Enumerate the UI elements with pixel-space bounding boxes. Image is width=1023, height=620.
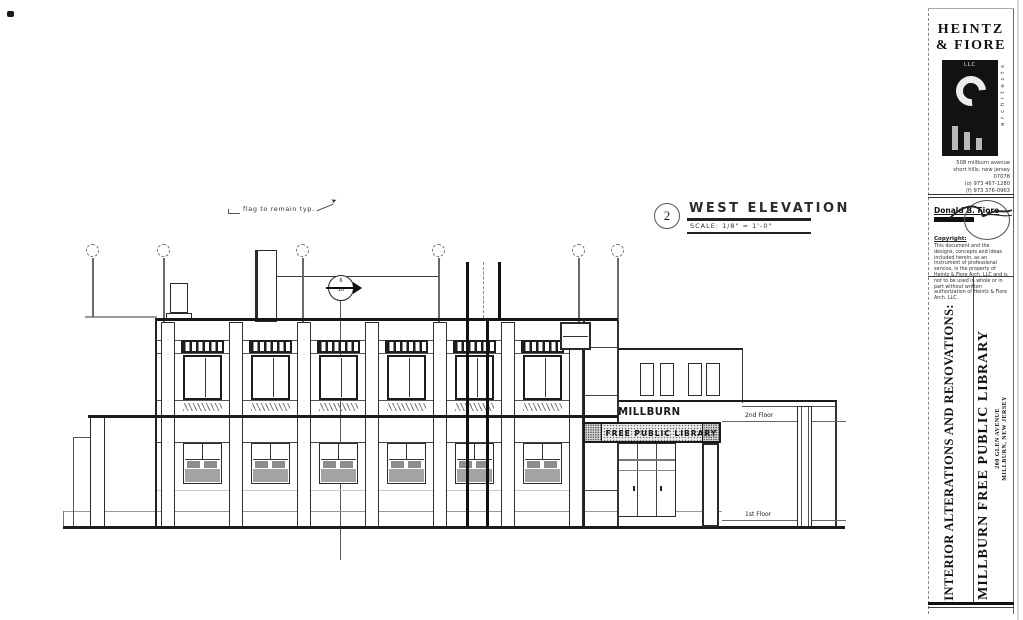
signature-scribble <box>948 200 1014 226</box>
light-pole <box>302 258 304 322</box>
ground-end-tick <box>63 511 64 527</box>
window-gray-pane <box>255 461 268 468</box>
second-floor-window <box>387 355 426 400</box>
window-lower-panel <box>389 469 424 482</box>
detail-number: 2 <box>664 208 671 223</box>
canopy-right-edge <box>835 400 837 527</box>
detail-number-bubble: 2 <box>654 203 680 229</box>
section-divider <box>928 276 1014 277</box>
note-leader-right <box>316 204 333 212</box>
door-handle <box>660 486 662 491</box>
sill-hatch <box>251 403 290 411</box>
title-block-top-border <box>928 8 1014 9</box>
section-marker-arrow-line <box>326 287 354 289</box>
second-floor-label: 2nd Floor <box>745 412 773 419</box>
logo-bar-icon <box>976 138 982 150</box>
firm-address-line: 07078 <box>932 174 1010 181</box>
second-floor-window <box>319 355 358 400</box>
second-floor-band <box>88 415 618 418</box>
note-arrow-icon: ➤ <box>330 196 338 206</box>
transom-vent-strip <box>521 340 564 353</box>
window-gray-pane <box>527 461 540 468</box>
window-gray-pane <box>340 461 353 468</box>
ground-line <box>63 526 845 529</box>
section-cut-line <box>340 300 341 560</box>
sign-band: FREE PUBLIC LIBRARY <box>583 422 721 443</box>
sign-band-text: FREE PUBLIC LIBRARY <box>606 429 701 438</box>
site-wall-cap <box>73 437 91 438</box>
window-transom-bar <box>321 459 356 460</box>
firm-address-line: 508 millburn avenue <box>932 160 1010 167</box>
light-pole <box>163 258 165 322</box>
window-gray-pane <box>323 461 336 468</box>
window-gray-pane <box>187 461 200 468</box>
roof-chimney <box>170 283 188 313</box>
first-floor-label: 1st Floor <box>745 511 771 518</box>
copyright-disclaimer: This document and the designs, concepts … <box>934 244 1010 302</box>
sill-hatch <box>523 403 562 411</box>
wing-right-edge <box>742 348 743 403</box>
window-gray-pane <box>408 461 421 468</box>
parapet-line <box>155 318 618 321</box>
storefront-mullion <box>656 444 657 516</box>
logo-bar-icon <box>952 126 958 150</box>
second-floor-window <box>523 355 562 400</box>
light-pole-globe <box>611 244 624 257</box>
window-mullion <box>542 444 543 459</box>
left-site-wall-top <box>85 316 157 318</box>
facade-pilaster <box>365 322 379 527</box>
title-block: HEINTZ & FIORE LLC a r c h i t e c t s 5… <box>928 8 1016 614</box>
facade-pilaster <box>161 322 175 527</box>
wing-window <box>640 363 654 396</box>
scanned-drawing-sheet: flag to remain typ. ➤ 2 WEST ELEVATION S… <box>0 0 1023 620</box>
site-wall-post <box>90 417 105 527</box>
facade-pilaster <box>297 322 311 527</box>
window-mullion <box>273 358 274 397</box>
canopy-soffit-line <box>742 406 836 407</box>
drawing-title: WEST ELEVATION <box>689 201 850 216</box>
building-name-label: MILLBURN <box>618 405 681 418</box>
facade-left-edge <box>155 318 157 527</box>
storefront-rail <box>619 470 675 471</box>
section-divider <box>928 197 1014 198</box>
sign-band-end-left <box>585 424 602 441</box>
sill-hatch <box>387 403 426 411</box>
storefront-transom-bar <box>619 459 675 461</box>
firm-architects-label: a r c h i t e c t s <box>1000 64 1006 126</box>
title-block-bottom-bar <box>928 602 1014 605</box>
window-transom-bar <box>525 459 560 460</box>
tower-corner-joint <box>563 336 588 337</box>
window-lower-panel <box>525 469 560 482</box>
window-mullion <box>270 444 271 459</box>
window-lower-panel <box>253 469 288 482</box>
logo-bar-icon <box>964 132 970 150</box>
first-floor-level-line <box>722 520 846 521</box>
project-scope: INTERIOR ALTERATIONS AND RENOVATIONS: <box>942 304 957 601</box>
window-transom-bar <box>185 459 220 460</box>
wing-window <box>706 363 720 396</box>
facade-pilaster <box>229 322 243 527</box>
canopy-fascia <box>618 400 836 402</box>
project-name: MILLBURN FREE PUBLIC LIBRARY <box>976 330 992 600</box>
second-floor-window <box>251 355 290 400</box>
light-pole <box>92 258 94 317</box>
flue-centerline <box>483 262 484 318</box>
facade-pilaster <box>501 322 515 527</box>
project-column-divider <box>973 276 974 602</box>
window-mullion <box>406 444 407 459</box>
light-pole-globe <box>296 244 309 257</box>
transom-vent-strip <box>249 340 292 353</box>
project-address-line1: 200 GLEN AVENUE <box>995 408 1001 469</box>
wing-window <box>688 363 702 396</box>
storefront-mullion <box>637 444 638 516</box>
window-transom-bar <box>389 459 424 460</box>
second-floor-level-line <box>722 421 846 422</box>
door-handle <box>633 486 635 491</box>
roof-stair-bulkhead <box>255 250 277 322</box>
site-wall-left-edge <box>73 437 74 527</box>
light-pole <box>438 258 440 322</box>
title-block-right-border <box>1013 8 1014 614</box>
window-lower-panel <box>321 469 356 482</box>
window-gray-pane <box>204 461 217 468</box>
canopy-column-line <box>801 407 802 526</box>
window-mullion <box>205 358 206 397</box>
sill-hatch <box>319 403 358 411</box>
note-leader-left-tick <box>228 209 229 214</box>
facade-pilaster <box>569 322 583 527</box>
scan-shadow-right <box>1017 0 1019 620</box>
window-mullion <box>338 444 339 459</box>
west-elevation-drawing: flag to remain typ. ➤ 2 WEST ELEVATION S… <box>0 0 930 620</box>
window-mullion <box>409 358 410 397</box>
entry-storefront <box>618 443 676 517</box>
section-marker-arrowhead-icon <box>353 282 362 294</box>
window-mullion <box>545 358 546 397</box>
light-pole-globe <box>157 244 170 257</box>
flue-line-left <box>466 262 469 527</box>
firm-logo: LLC <box>942 60 998 156</box>
section-marker-top: 6 <box>329 276 353 286</box>
window-gray-pane <box>272 461 285 468</box>
project-address-line2: MILLBURN, NEW JERSEY <box>1002 396 1008 481</box>
tower-joint-2 <box>583 395 617 396</box>
firm-logo-llc: LLC <box>942 62 998 68</box>
copyright-label: Copyright: <box>934 236 967 242</box>
canopy-column-line <box>808 407 809 526</box>
drawing-scale: SCALE: 1/8" = 1'-0" <box>690 222 773 230</box>
light-pole-globe <box>432 244 445 257</box>
sill-hatch <box>183 403 222 411</box>
window-mullion <box>341 358 342 397</box>
title-block-left-border <box>928 8 929 614</box>
flue-line-right-upper <box>498 262 501 320</box>
window-mullion <box>474 444 475 459</box>
title-rule <box>687 218 811 221</box>
tower-corner-panel <box>560 322 591 350</box>
tower-joint-3 <box>583 490 617 491</box>
firm-name-line2: & FIORE <box>928 38 1014 54</box>
firm-address-block: 508 millburn avenue short hills, new jer… <box>932 160 1010 195</box>
window-gray-pane <box>544 461 557 468</box>
transom-vent-strip <box>385 340 428 353</box>
second-floor-window <box>183 355 222 400</box>
facade-pilaster <box>433 322 447 527</box>
logo-spiral-icon <box>950 70 992 112</box>
entry-pier <box>702 443 719 527</box>
firm-address-line: short hills, new jersey <box>932 167 1010 174</box>
note-leader-left <box>228 213 240 214</box>
transom-vent-strip <box>453 340 496 353</box>
annotation-note: flag to remain typ. <box>243 205 315 213</box>
firm-address-line: (o) 973 467-1280 <box>932 181 1010 188</box>
canopy-column <box>797 406 812 527</box>
firm-name-line1: HEINTZ <box>928 22 1014 38</box>
light-pole <box>578 258 580 322</box>
window-gray-pane <box>391 461 404 468</box>
transom-vent-strip <box>181 340 224 353</box>
window-lower-panel <box>185 469 220 482</box>
section-divider <box>928 194 1014 195</box>
flue-line-right-lower <box>486 320 489 527</box>
wing-window <box>660 363 674 396</box>
window-transom-bar <box>253 459 288 460</box>
light-pole-globe <box>572 244 585 257</box>
transom-vent-strip <box>317 340 360 353</box>
title-block-bottom-line <box>928 607 1014 608</box>
window-mullion <box>477 358 478 397</box>
light-pole-globe <box>86 244 99 257</box>
wing-roof-line <box>618 348 742 350</box>
window-mullion <box>202 444 203 459</box>
title-rule-2 <box>687 232 811 234</box>
